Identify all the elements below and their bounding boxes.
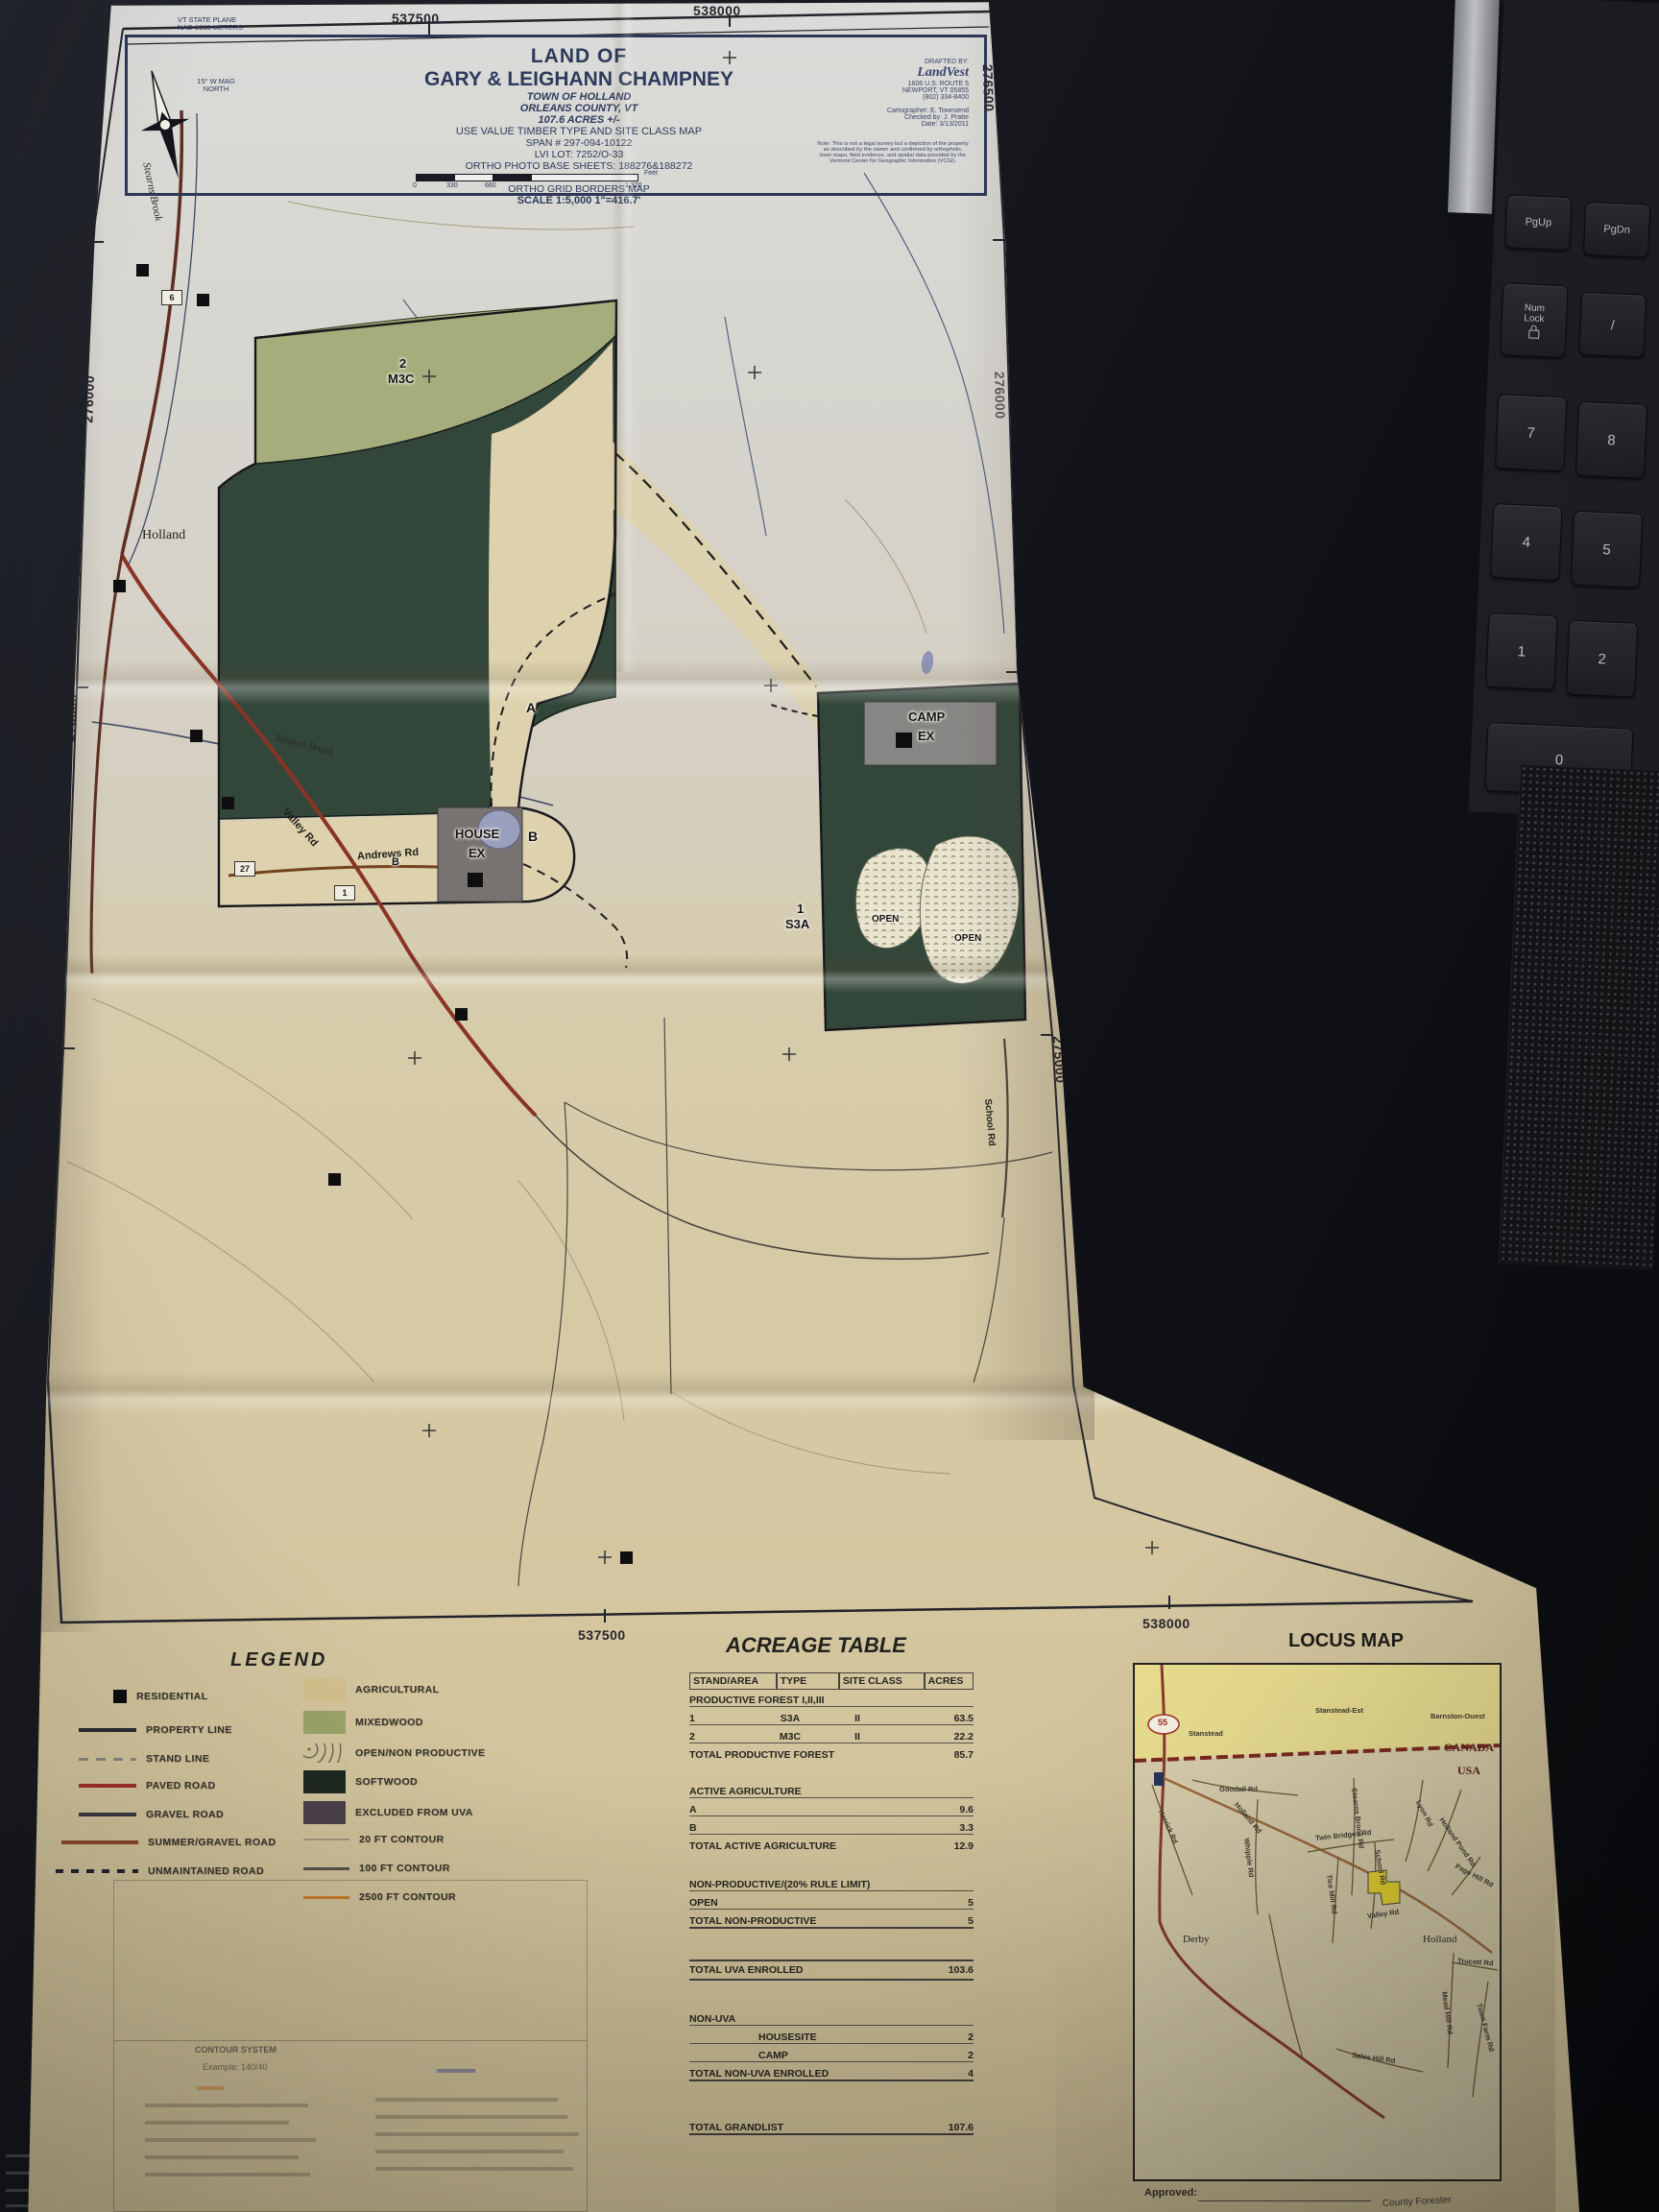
legend-item: MIXEDWOOD <box>303 1711 423 1734</box>
speaker-grille <box>1499 765 1659 1271</box>
contour-note-box: CONTOUR SYSTEM Example: 140/40 <box>113 1880 588 2212</box>
table-row: CAMP2 <box>689 2050 974 2062</box>
open-label-1: OPEN <box>872 914 899 925</box>
excluded-uva-swatch <box>303 1801 346 1824</box>
faded-print <box>145 2155 299 2159</box>
property-line-swatch <box>79 1728 136 1732</box>
stand-line-swatch <box>79 1758 136 1761</box>
grid-bottom-2: 538000 <box>1142 1617 1190 1631</box>
key-5: 5 <box>1571 511 1643 589</box>
small-pond <box>920 650 934 674</box>
contour-note-title: CONTOUR SYSTEM <box>195 2046 276 2056</box>
contour-20-swatch <box>303 1839 349 1840</box>
residential-swatch <box>113 1690 127 1703</box>
key-numlock: Num Lock <box>1500 282 1568 358</box>
span-line: SPAN # 297-094-10122 <box>329 137 829 149</box>
faded-print <box>437 2069 475 2073</box>
table-row: HOUSESITE2 <box>689 2032 974 2044</box>
canada-label: CANADA <box>1444 1742 1494 1754</box>
house-label-1: HOUSE <box>455 828 499 841</box>
faded-print <box>375 2150 564 2153</box>
nonuva-total-row: TOTAL NON-UVA ENROLLED4 <box>689 2068 974 2081</box>
key-pgup: PgUp <box>1504 194 1572 251</box>
legend-item: 100 FT CONTOUR <box>303 1863 450 1874</box>
grid-right-4: 275000 <box>1049 1035 1068 1084</box>
key-slash: / <box>1578 292 1647 358</box>
house-label-2: EX <box>469 847 485 860</box>
section-total-row: TOTAL ACTIVE AGRICULTURE12.9 <box>689 1840 974 1852</box>
faded-print <box>375 2132 579 2136</box>
table-row: 2 M3C II 22.2 <box>689 1731 974 1743</box>
agricultural-swatch <box>303 1678 346 1701</box>
place-barnston: Barnston-Ouest <box>1431 1713 1485 1720</box>
legend-item: PROPERTY LINE <box>79 1724 232 1736</box>
road-goodall: Goodall Rd <box>1219 1786 1258 1793</box>
legend-item: 20 FT CONTOUR <box>303 1834 444 1845</box>
road-badge-1: 1 <box>334 885 355 901</box>
place-holland: Holland <box>1423 1934 1456 1945</box>
locus-map-title: LOCUS MAP <box>1288 1630 1404 1651</box>
faded-print <box>145 2104 308 2107</box>
grid-right-3: 275500 <box>1022 685 1039 733</box>
section-total-row: TOTAL PRODUCTIVE FOREST85.7 <box>689 1749 974 1761</box>
key-2: 2 <box>1566 620 1638 698</box>
approval-signature-line <box>1198 2200 1371 2201</box>
key-1: 1 <box>1485 613 1557 690</box>
stand-1-type: S3A <box>785 918 809 931</box>
acreage-line: 107.6 ACRES +/- <box>329 114 829 126</box>
grid-bottom-1: 537500 <box>578 1628 626 1643</box>
faded-print <box>145 2138 316 2142</box>
faded-print <box>145 2173 310 2176</box>
grid-left-2: 276000 <box>81 375 97 423</box>
scale-unit: Feet <box>644 170 658 178</box>
table-row: A9.6 <box>689 1804 974 1816</box>
legend-item: PAVED ROAD <box>79 1780 215 1791</box>
contour-note-example: Example: 140/40 <box>203 2063 268 2073</box>
grid-right-2: 276000 <box>992 372 1007 420</box>
grid-right-1: 276500 <box>979 64 996 112</box>
legend-item: AGRICULTURAL <box>303 1678 439 1701</box>
legend-item: GRAVEL ROAD <box>79 1809 224 1820</box>
laptop-edge <box>1448 0 1500 214</box>
scale-line: SCALE 1:5,000 1"=416.7' <box>329 195 829 206</box>
area-b-label: B <box>528 829 538 844</box>
scale-tick: 1,320 <box>625 182 642 190</box>
trail-lines <box>518 1018 1052 1586</box>
acreage-table: STAND/AREA TYPE SITE CLASS ACRES PRODUCT… <box>689 1672 974 2135</box>
stand-2-number: 2 <box>399 357 406 371</box>
place-stanstead-est: Stanstead-Est <box>1315 1707 1363 1715</box>
map-type-line: USE VALUE TIMBER TYPE AND SITE CLASS MAP <box>329 126 829 137</box>
summer-road-swatch <box>61 1840 138 1844</box>
trail-southeast <box>536 1116 989 1259</box>
legend-item: OPEN/NON PRODUCTIVE <box>303 1743 485 1763</box>
uva-total-row: TOTAL UVA ENROLLED103.6 <box>689 1960 974 1981</box>
holland-town-label: Holland <box>142 528 185 542</box>
scale-tick: 660 <box>485 182 496 190</box>
section-heading: ACTIVE AGRICULTURE <box>689 1786 974 1798</box>
faded-print <box>145 2121 289 2125</box>
route-55-shield: 55 <box>1158 1719 1167 1728</box>
camp-label-1: CAMP <box>908 710 945 724</box>
school-road-line <box>1002 1039 1008 1217</box>
open-nonproductive-swatch <box>303 1743 346 1763</box>
drafting-credits: DRAFTED BY: LandVest 1606 U.S. ROUTE 5 N… <box>887 59 969 128</box>
ortho-sheets-line: ORTHO PHOTO BASE SHEETS: 188276&188272 <box>329 160 829 172</box>
legend-item: SOFTWOOD <box>303 1770 418 1793</box>
acreage-header-row: STAND/AREA TYPE SITE CLASS ACRES <box>689 1672 974 1690</box>
key-4: 4 <box>1490 503 1562 581</box>
softwood-swatch <box>303 1770 346 1793</box>
key-7: 7 <box>1495 394 1567 471</box>
key-8: 8 <box>1575 401 1647 479</box>
stand-1-number: 1 <box>797 902 804 916</box>
county-line: ORLEANS COUNTY, VT <box>329 103 829 114</box>
scale-bar: 0 330 660 1,320 Feet <box>416 174 665 189</box>
grid-top-2: 538000 <box>693 4 741 18</box>
gravel-road-west <box>91 555 122 974</box>
section-heading: PRODUCTIVE FOREST I,II,III <box>689 1695 974 1707</box>
photo-of-forestry-map: PgUp PgDn Num Lock / 7 8 4 5 1 2 0 <box>0 0 1659 2212</box>
mixedwood-swatch <box>303 1711 346 1734</box>
contour-100-swatch <box>303 1867 349 1870</box>
faded-print <box>375 2098 558 2102</box>
legend-item: UNMAINTAINED ROAD <box>56 1865 264 1877</box>
grandlist-row: TOTAL GRANDLIST107.6 <box>689 2122 974 2135</box>
lock-icon <box>1528 329 1539 338</box>
table-row: OPEN5 <box>689 1897 974 1910</box>
scale-tick: 0 <box>413 182 417 190</box>
datum-note: VT STATE PLANENAD 1983 METERS <box>178 16 243 33</box>
scale-tick: 330 <box>446 182 458 190</box>
place-derby: Derby <box>1183 1934 1210 1945</box>
landvest-logo: LandVest <box>887 65 969 81</box>
faded-print <box>375 2115 567 2119</box>
paved-road-swatch <box>79 1784 136 1788</box>
table-row: 1 S3A II 63.5 <box>689 1713 974 1725</box>
acreage-table-title: ACREAGE TABLE <box>726 1634 906 1657</box>
faded-print <box>375 2167 573 2171</box>
gravel-road-swatch <box>79 1813 136 1816</box>
usa-label: USA <box>1457 1765 1480 1777</box>
legend-item: EXCLUDED FROM UVA <box>303 1801 473 1824</box>
magnetic-north-note: 15° W MAG NORTH <box>187 78 245 94</box>
legend-item: STAND LINE <box>79 1753 209 1765</box>
camp-label-2: EX <box>918 730 934 743</box>
table-row: B3.3 <box>689 1822 974 1835</box>
numeric-keypad: PgUp PgDn Num Lock / 7 8 4 5 1 2 0 <box>1480 175 1659 815</box>
grid-top-1: 537500 <box>392 12 440 26</box>
lvi-lot-line: LVI LOT: 7252/O-33 <box>329 149 829 160</box>
paper-map: VT STATE PLANENAD 1983 METERS 15° W MAG … <box>0 0 1659 2212</box>
locus-map: 55 Stanstead Stanstead-Est Barnston-Oues… <box>1133 1663 1502 2181</box>
unmaintained-road-swatch <box>56 1869 138 1873</box>
area-a-label: A <box>526 701 536 715</box>
map-title-owners: GARY & LEIGHANN CHAMPNEY <box>329 68 829 91</box>
title-block: VT STATE PLANENAD 1983 METERS 15° W MAG … <box>125 35 987 196</box>
legend-item: RESIDENTIAL <box>113 1690 207 1703</box>
stand-2-type: M3C <box>388 373 414 386</box>
legend-title: LEGEND <box>230 1649 327 1671</box>
section-total-row: TOTAL NON-PRODUCTIVE5 <box>689 1915 974 1929</box>
legend-item: SUMMER/GRAVEL ROAD <box>61 1837 276 1848</box>
road-badge-6: 6 <box>161 290 182 305</box>
grid-left-1: 276500 <box>88 69 106 117</box>
open-label-2: OPEN <box>954 933 981 944</box>
section-heading: NON-PRODUCTIVE/(20% RULE LIMIT) <box>689 1879 974 1891</box>
town-line: TOWN OF HOLLAND <box>329 91 829 103</box>
approved-label: Approved: <box>1144 2187 1197 2199</box>
faded-print <box>197 2086 224 2090</box>
key-pgdn: PgDn <box>1583 202 1650 258</box>
road-badge-27: 27 <box>234 861 255 877</box>
map-title-line1: LAND OF <box>329 45 829 68</box>
place-stanstead: Stanstead <box>1189 1730 1223 1738</box>
survey-disclaimer: Note: This is not a legal survey but a d… <box>817 141 969 164</box>
drafted-by-label: DRAFTED BY: <box>887 59 969 65</box>
agriculture-wedge <box>613 442 818 730</box>
nonuva-heading: NON-UVA <box>689 2013 974 2026</box>
